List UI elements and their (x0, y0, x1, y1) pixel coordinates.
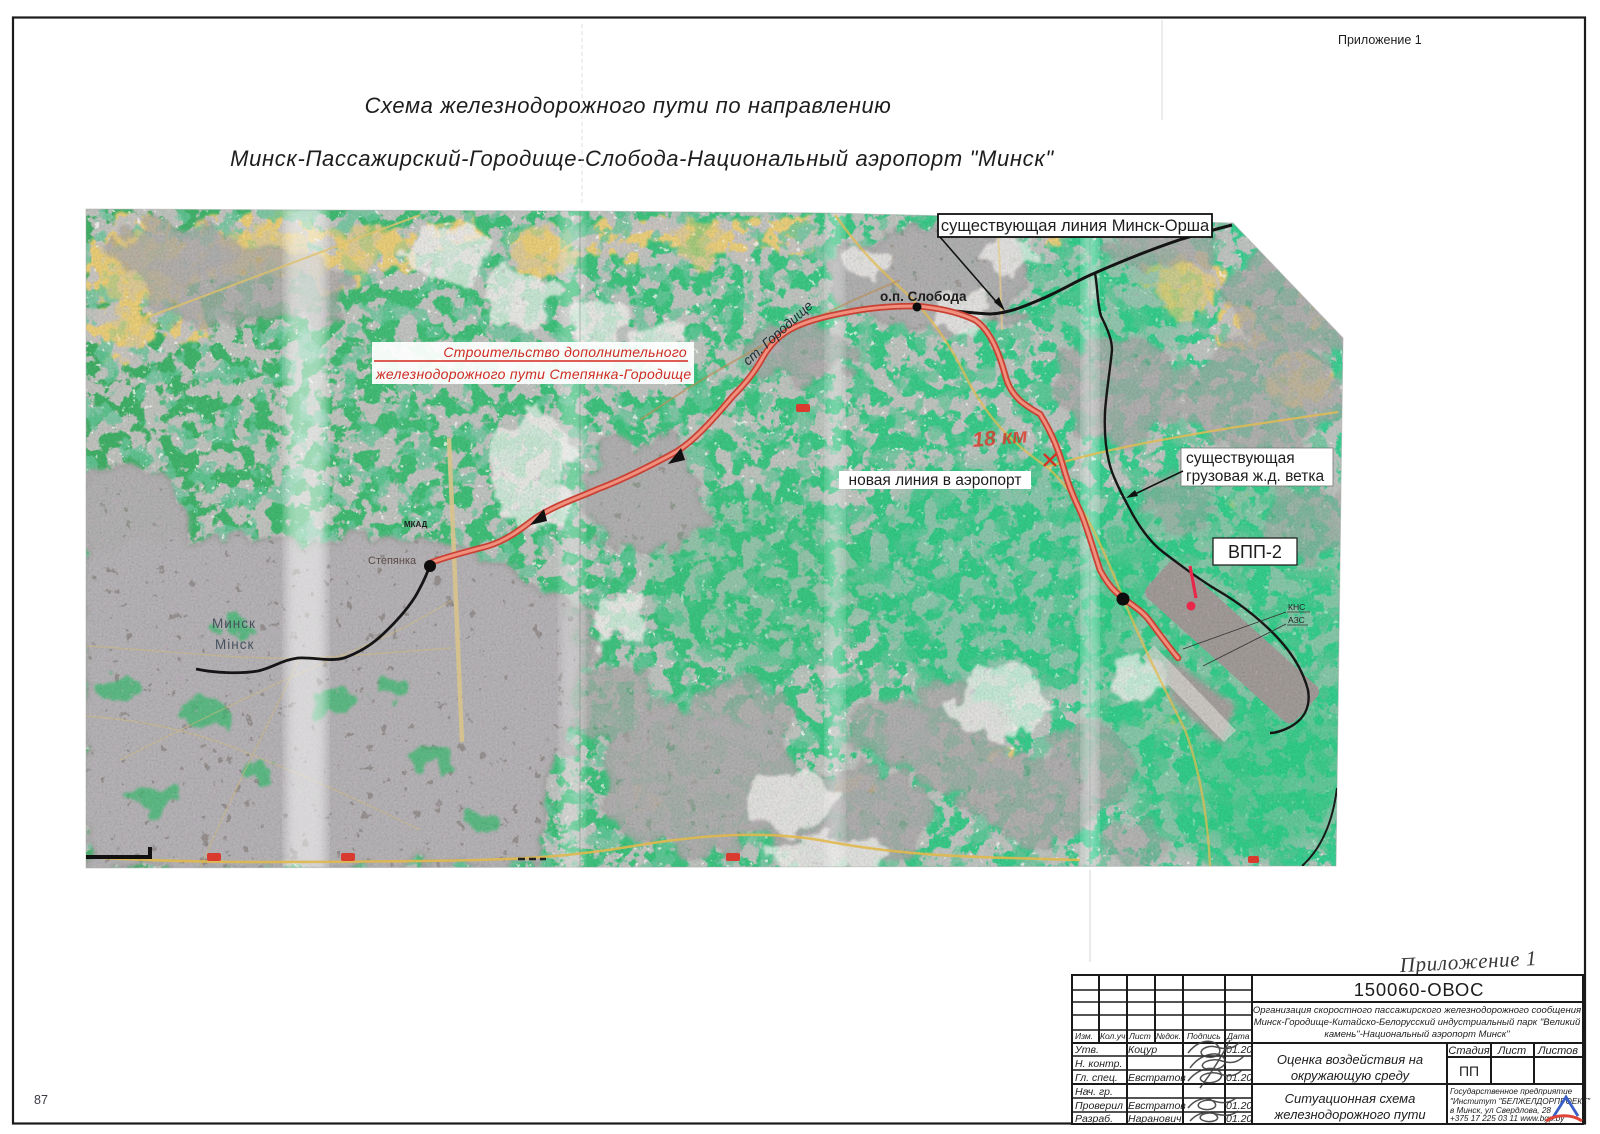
svg-text:Минск-Пассажирский-Городище-Сл: Минск-Пассажирский-Городище-Слобода-Наци… (230, 146, 1054, 171)
svg-text:АЗС: АЗС (1288, 615, 1305, 625)
svg-text:18 км: 18 км (971, 424, 1029, 452)
svg-text:ПП: ПП (1459, 1063, 1479, 1079)
svg-text:железнодорожного пути: железнодорожного пути (1273, 1107, 1425, 1122)
svg-text:о.п. Слобода: о.п. Слобода (880, 289, 967, 304)
svg-text:150060-ОВОС: 150060-ОВОС (1354, 979, 1485, 1000)
svg-text:Ситуационная схема: Ситуационная схема (1285, 1091, 1416, 1106)
svg-text:Коцур: Коцур (1128, 1044, 1157, 1056)
svg-text:Минск: Минск (212, 616, 256, 631)
svg-text:Государственное предприятие: Государственное предприятие (1450, 1087, 1573, 1096)
svg-text:Лист: Лист (1128, 1031, 1151, 1041)
svg-text:окружающую среду: окружающую среду (1291, 1068, 1411, 1083)
svg-text:КНС: КНС (1288, 602, 1305, 612)
svg-text:Листов: Листов (1537, 1045, 1578, 1057)
svg-text:грузовая ж.д. ветка: грузовая ж.д. ветка (1186, 468, 1325, 485)
svg-text:Лист: Лист (1497, 1045, 1526, 1057)
svg-text:существующая линия Минск-Орша: существующая линия Минск-Орша (941, 217, 1210, 235)
svg-text:существующая: существующая (1186, 450, 1295, 467)
svg-text:Строительство дополнительного: Строительство дополнительного (443, 344, 687, 360)
svg-text:Нач. гр.: Нач. гр. (1075, 1086, 1113, 1098)
svg-text:Оценка воздействия на: Оценка воздействия на (1277, 1052, 1423, 1067)
svg-text:камень"-Национальный аэропорт: камень"-Национальный аэропорт Минск" (1324, 1029, 1510, 1040)
svg-text:Степянка: Степянка (368, 555, 417, 567)
svg-text:Минск-Городище-Китайско-Белору: Минск-Городище-Китайско-Белорусский инду… (1254, 1017, 1581, 1028)
svg-text:МКАД: МКАД (404, 520, 428, 529)
svg-text:Н. контр.: Н. контр. (1075, 1058, 1122, 1070)
svg-text:Приложение 1: Приложение 1 (1338, 33, 1422, 47)
svg-text:Утв.: Утв. (1074, 1044, 1099, 1056)
svg-text:Евстратов: Евстратов (1128, 1072, 1186, 1084)
svg-text:01.20: 01.20 (1226, 1072, 1252, 1084)
svg-text:Подпись: Подпись (1187, 1031, 1221, 1041)
svg-text:Схема железнодорожного пути по: Схема железнодорожного пути по направлен… (365, 93, 892, 118)
svg-text:Проверил: Проверил (1075, 1100, 1123, 1112)
svg-text:87: 87 (34, 1093, 48, 1107)
svg-text:Евстратов: Евстратов (1128, 1100, 1186, 1112)
svg-text:Стадия: Стадия (1448, 1045, 1489, 1057)
svg-text:№док.: №док. (1156, 1031, 1181, 1041)
svg-text:ВПП-2: ВПП-2 (1228, 542, 1282, 562)
svg-text:Разраб.: Разраб. (1075, 1113, 1113, 1125)
svg-text:01.20: 01.20 (1226, 1044, 1252, 1056)
svg-text:Кол.уч: Кол.уч (1100, 1031, 1126, 1041)
svg-text:новая линия в аэропорт: новая линия в аэропорт (849, 472, 1022, 489)
svg-text:Гл. спец.: Гл. спец. (1075, 1072, 1118, 1084)
svg-text:Организация скоростного пассаж: Организация скоростного пассажирского же… (1253, 1005, 1581, 1016)
svg-text:Наранович: Наранович (1128, 1113, 1182, 1125)
svg-text:железнодорожного пути Степянка: железнодорожного пути Степянка-Городище (375, 366, 691, 382)
svg-text:Дата: Дата (1226, 1031, 1250, 1041)
svg-text:Изм.: Изм. (1075, 1031, 1093, 1041)
svg-text:Мінск: Мінск (215, 637, 254, 652)
